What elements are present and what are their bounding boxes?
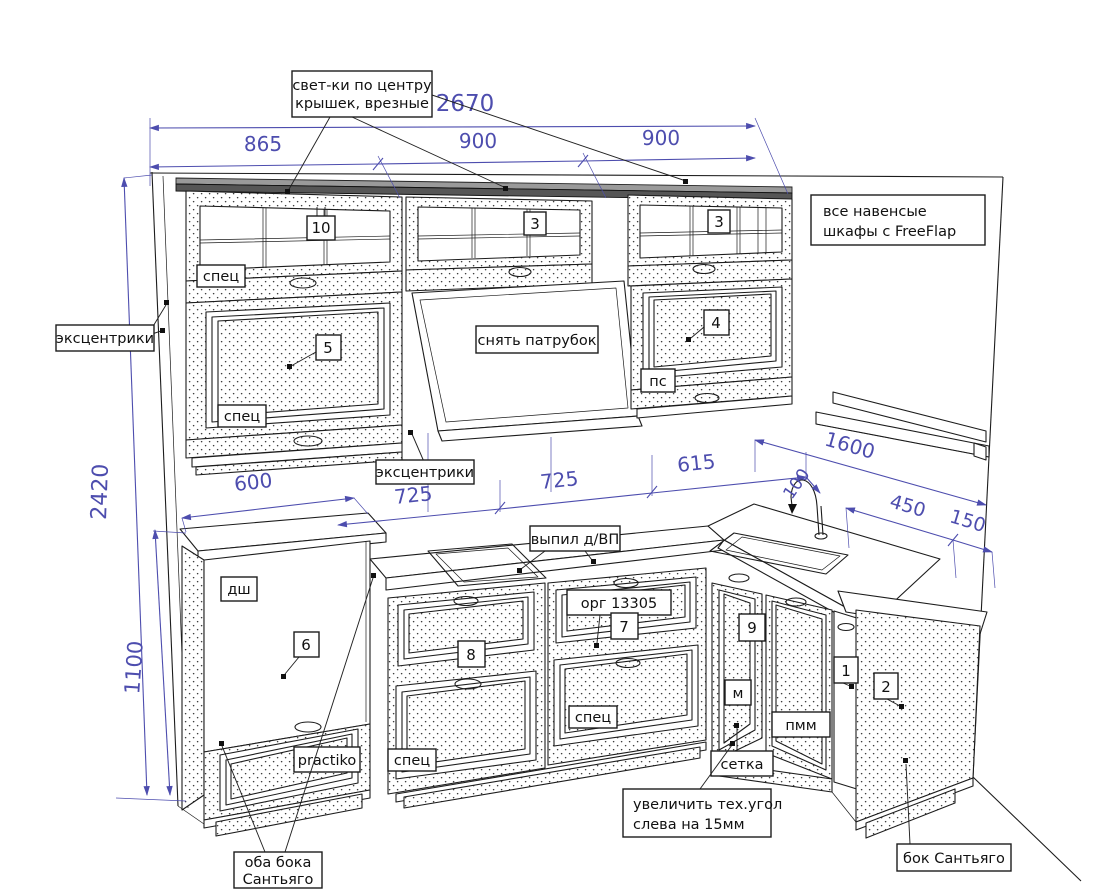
marker-4-text: 4 <box>711 314 721 332</box>
dim-base-left-width: 600 <box>233 468 274 496</box>
kitchen-elevation-drawing: 2670 865 900 900 2420 1100 600 725 725 6… <box>0 0 1117 889</box>
both-sides-line2: Сантьяго <box>243 872 314 888</box>
spec-label: спец <box>224 409 260 425</box>
spec-label: спец <box>203 269 239 285</box>
marker-2-text: 2 <box>881 678 891 696</box>
dim-seg-mid: 900 <box>459 129 497 153</box>
marker-9-text: 9 <box>747 619 757 637</box>
lights-note-line2: крышек, врезные <box>295 96 429 112</box>
callout-practiko: practiko <box>294 747 360 772</box>
m-label: м <box>733 686 744 702</box>
remove-pipe-label: снять патрубок <box>478 333 597 349</box>
callout-dsh: дш <box>221 577 257 601</box>
spec-label: спец <box>575 710 611 726</box>
callout-remove-pipe: снять патрубок <box>476 326 598 353</box>
freeflap-note-line2: шкафы с FreeFlap <box>823 224 956 240</box>
dim-seg-right: 900 <box>642 126 680 150</box>
marker-3a: 3 <box>524 212 546 235</box>
marker-7: 7 <box>611 613 638 639</box>
marker-8: 8 <box>458 641 485 667</box>
marker-3b-text: 3 <box>714 213 724 231</box>
dishwasher-door <box>766 595 832 779</box>
eccentrics-left-label: эксцентрики <box>56 331 154 347</box>
marker-10-text: 10 <box>311 219 330 237</box>
dim-seg-left: 865 <box>244 132 282 156</box>
callout-freeflap: все навенсые шкафы с FreeFlap <box>811 195 985 245</box>
kitchen-drawing-page: 2670 865 900 900 2420 1100 600 725 725 6… <box>0 0 1117 889</box>
callout-m: м <box>725 680 751 705</box>
dim-base-seg1: 725 <box>393 481 433 509</box>
spec-label: спец <box>394 753 430 769</box>
marker-6-text: 6 <box>301 636 311 654</box>
marker-9: 9 <box>739 614 765 641</box>
org-label: орг 13305 <box>581 596 657 612</box>
callout-spec-stack7: спец <box>569 706 617 728</box>
marker-5-text: 5 <box>323 339 333 357</box>
tech-corner-line1: увеличить тех.угол <box>633 797 782 813</box>
marker-7-text: 7 <box>619 618 629 636</box>
wall-cabinet-left <box>186 191 402 475</box>
practiko-label: practiko <box>298 753 357 769</box>
lights-note-line1: свет-ки по центру <box>292 78 432 94</box>
callout-spec-stack8: спец <box>388 749 436 771</box>
marker-3b: 3 <box>708 210 730 233</box>
dsh-label: дш <box>227 582 250 598</box>
dim-height-total: 2420 <box>87 463 114 520</box>
dim-base-seg3: 615 <box>676 449 716 477</box>
both-sides-line1: оба бока <box>245 855 312 871</box>
freeflap-note-line1: все навенсые <box>823 204 927 220</box>
hood-open-flap <box>412 281 638 431</box>
dim-height-base: 1100 <box>120 640 148 695</box>
ps-label: пс <box>649 374 666 390</box>
marker-3a-text: 3 <box>530 215 540 233</box>
eccentrics-mid-label: эксцентрики <box>376 465 474 481</box>
dim-base-seg2: 725 <box>539 466 579 494</box>
side-santiago-label: бок Сантьяго <box>903 851 1005 867</box>
marker-1-text: 1 <box>841 662 851 680</box>
callout-ps: пс <box>641 369 675 392</box>
callout-spec-a: спец <box>197 265 245 287</box>
pmm-label: пмм <box>785 718 816 734</box>
callout-pmm: пмм <box>772 712 830 737</box>
callout-spec-b: спец <box>218 405 266 427</box>
mesh-label: сетка <box>721 757 764 773</box>
marker-8-text: 8 <box>466 646 476 664</box>
tech-corner-line2: слева на 15мм <box>633 817 745 833</box>
cutout-label: выпил д/ВП <box>531 532 620 548</box>
